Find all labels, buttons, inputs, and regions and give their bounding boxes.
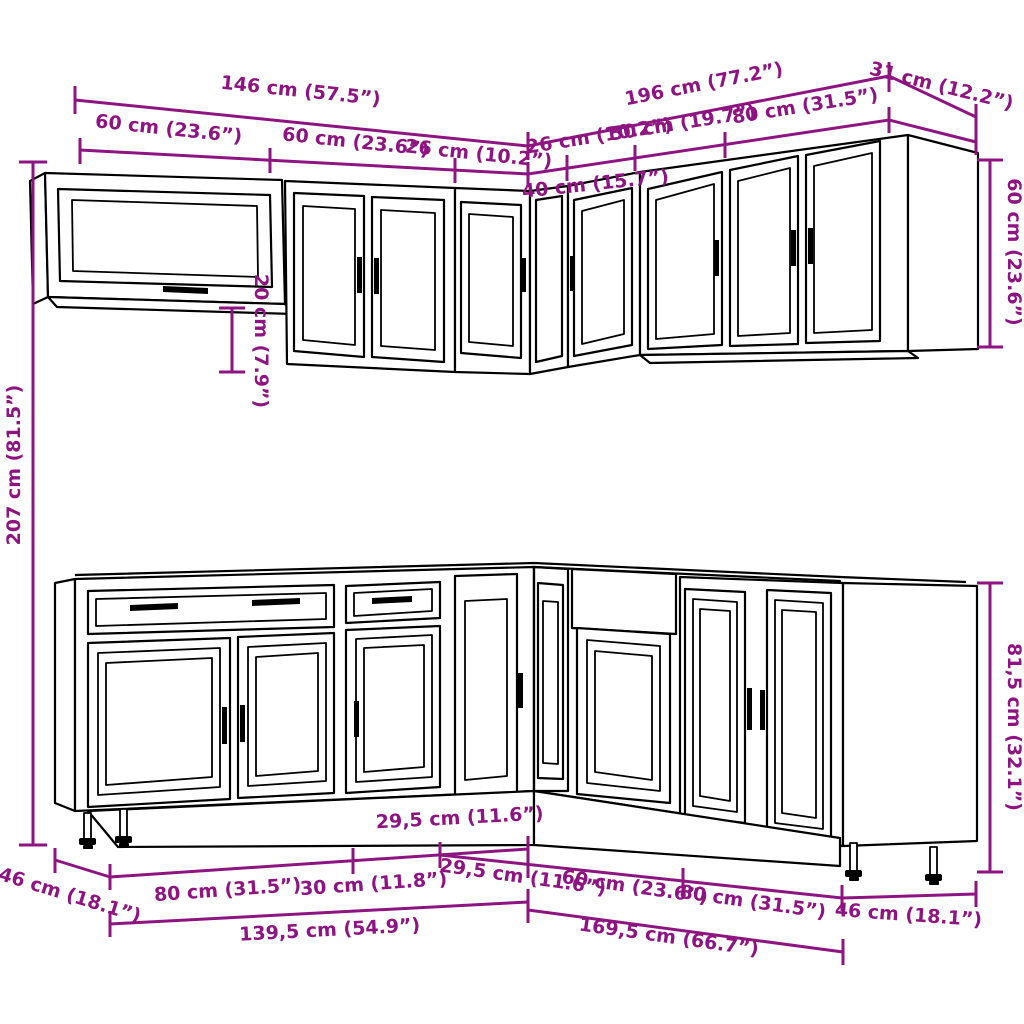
- wall-cabinets: [30, 135, 978, 374]
- dim-base-width-left: 139,5 cm (54.9”): [239, 914, 421, 945]
- door-handle: [521, 258, 526, 292]
- dim-base-seg-left-1: 80 cm (31.5”): [153, 874, 302, 906]
- wall-cabinet-26-left: [455, 188, 530, 374]
- dim-base-seg-left-2: 30 cm (11.8”): [299, 868, 448, 900]
- door-handle: [714, 240, 719, 276]
- dim-upper-seg-right-3: 80 cm (31.5”): [731, 84, 880, 129]
- door-handle: [374, 258, 379, 294]
- door-handle: [791, 230, 796, 266]
- base-cabinet-60-sink: [572, 569, 676, 803]
- dim-base-depth-left: 46 cm (18.1”): [0, 863, 143, 927]
- dim-upper-bottom-offset: 20 cm (7.9”): [250, 274, 272, 408]
- kitchen-dimension-diagram: 146 cm (57.5”) 60 cm (23.6”) 60 cm (23.6…: [0, 0, 1024, 1024]
- base-cabinet-30: [346, 582, 440, 793]
- door-handle: [747, 688, 752, 730]
- door-handle: [760, 690, 765, 730]
- wall-cabinet-60: [285, 181, 455, 372]
- wall-side-panel: [908, 135, 978, 351]
- door-handle: [808, 228, 813, 264]
- door-handle: [240, 705, 245, 742]
- door-handle: [518, 673, 523, 708]
- base-cabinet-80-left: [88, 585, 334, 807]
- base-right-panel: [843, 583, 977, 846]
- dim-base-depth-right: 46 cm (18.1”): [834, 899, 983, 931]
- dim-total-height: 207 cm (81.5”): [3, 385, 25, 546]
- base-left-panel: [55, 579, 75, 811]
- door-handle: [222, 707, 227, 744]
- door-handle: [357, 257, 362, 293]
- door-handle: [354, 701, 359, 737]
- door-handle: [570, 256, 575, 291]
- wall-cabinet-corner: [530, 172, 640, 374]
- diagram-canvas: 146 cm (57.5”) 60 cm (23.6”) 60 cm (23.6…: [0, 0, 1024, 1024]
- base-cabinets: [55, 563, 977, 885]
- wall-cabinets-right-run: [640, 135, 978, 363]
- dim-upper-height: 60 cm (23.6”): [1003, 178, 1024, 325]
- base-cabinet-80-right: [680, 577, 843, 846]
- base-cabinet-corner: [455, 567, 568, 799]
- dim-base-width-right: 169,5 cm (66.7”): [578, 914, 760, 961]
- dim-base-height: 81,5 cm (32.1”): [1003, 643, 1024, 811]
- dim-upper-width-left: 146 cm (57.5”): [220, 72, 382, 111]
